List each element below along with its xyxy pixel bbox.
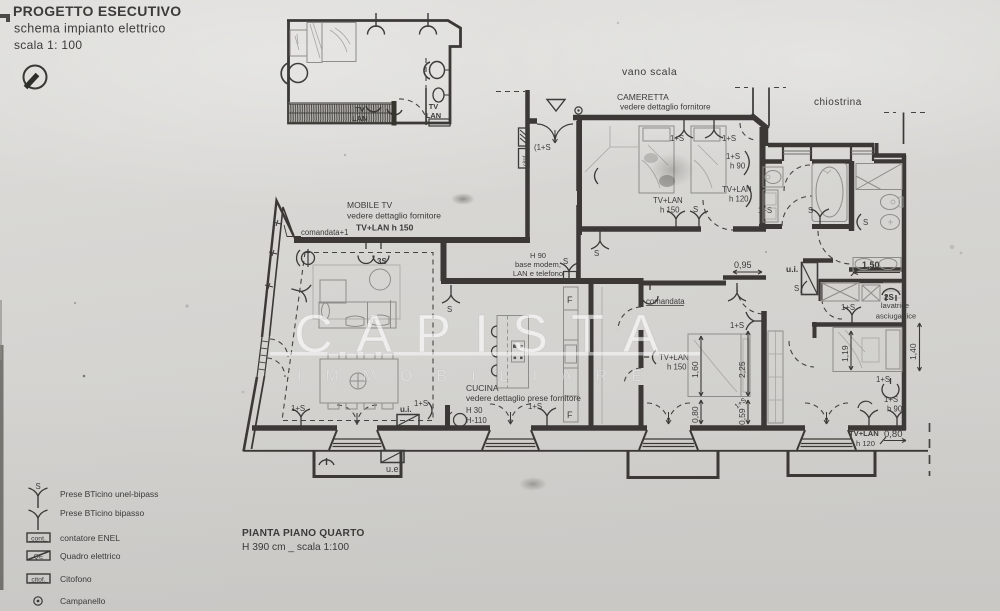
svg-text:LAN: LAN (352, 114, 368, 123)
svg-text:0,59: 0,59 (737, 408, 747, 425)
svg-text:1,60: 1,60 (690, 361, 700, 378)
svg-text:TV+LAN h 150: TV+LAN h 150 (356, 223, 414, 233)
svg-text:1+S: 1+S (528, 402, 542, 411)
svg-text:1+S: 1+S (670, 134, 684, 143)
svg-text:base modem,: base modem, (515, 260, 561, 269)
svg-text:vedere dettaglio fornitore: vedere dettaglio fornitore (347, 211, 441, 221)
svg-text:1+S: 1+S (730, 321, 744, 330)
svg-text:Prese BTicino bipasso: Prese BTicino bipasso (60, 508, 145, 518)
svg-text:chiostrina: chiostrina (814, 97, 862, 108)
svg-text:S: S (794, 284, 799, 293)
svg-text:1+S: 1+S (722, 134, 736, 143)
svg-text:h 150: h 150 (660, 206, 680, 215)
svg-text:h 120: h 120 (856, 439, 875, 448)
svg-text:(1+S: (1+S (534, 143, 551, 152)
svg-text:TV+LAN: TV+LAN (653, 196, 683, 205)
svg-text:PIANTA PIANO QUARTO: PIANTA PIANO QUARTO (242, 528, 364, 539)
svg-text:u.i.: u.i. (786, 264, 798, 274)
svg-text:TV: TV (355, 105, 366, 114)
svg-text:vedere dettaglio fornitore: vedere dettaglio fornitore (620, 103, 711, 112)
svg-text:IMMOBILIARE: IMMOBILIARE (297, 368, 666, 385)
svg-text:TV: TV (429, 102, 439, 111)
svg-text:scala 1: 100: scala 1: 100 (14, 38, 82, 52)
svg-text:S: S (808, 206, 813, 215)
svg-text:Citofono: Citofono (60, 574, 92, 584)
svg-text:vedere dettaglio prese fornito: vedere dettaglio prese fornitore (466, 393, 581, 403)
svg-text:1,40: 1,40 (908, 343, 918, 360)
svg-text:h 120: h 120 (729, 195, 749, 204)
svg-text:H 90: H 90 (530, 251, 546, 260)
svg-text:F: F (567, 410, 573, 420)
svg-text:schema impianto elettrico: schema impianto elettrico (14, 22, 166, 36)
svg-text:1+S: 1+S (876, 375, 890, 384)
svg-text:1+S: 1+S (414, 399, 428, 408)
svg-text:lavatrice: lavatrice (881, 301, 909, 310)
svg-text:vano scala: vano scala (622, 66, 677, 78)
svg-text:TV+LAN: TV+LAN (849, 429, 879, 438)
svg-text:asciugatrice: asciugatrice (876, 312, 917, 321)
svg-text:MOBILE TV: MOBILE TV (347, 200, 393, 210)
svg-text:1,19: 1,19 (840, 345, 850, 362)
svg-text:1,50: 1,50 (862, 260, 880, 270)
svg-text:u.e.: u.e. (386, 464, 401, 474)
svg-text:S: S (863, 218, 868, 227)
svg-text:H 30: H 30 (466, 406, 483, 415)
svg-text:Prese BTicino unel-bipass: Prese BTicino unel-bipass (60, 489, 158, 499)
svg-text:1+S: 1+S (726, 152, 740, 161)
svg-text:H-110: H-110 (466, 416, 487, 425)
svg-text:2,25: 2,25 (737, 361, 747, 378)
svg-text:CAMERETTA: CAMERETTA (617, 92, 669, 102)
svg-text:h 90: h 90 (887, 405, 903, 414)
svg-text:S: S (594, 249, 599, 258)
svg-text:h 90: h 90 (730, 162, 746, 171)
svg-text:u.i.: u.i. (400, 405, 412, 414)
svg-text:contatore ENEL: contatore ENEL (60, 533, 120, 543)
svg-text:citof.: citof. (523, 154, 529, 166)
svg-text:Quadro elettrico: Quadro elettrico (60, 551, 121, 561)
svg-text:comandata+1: comandata+1 (301, 228, 348, 237)
svg-text:Campanello: Campanello (60, 596, 106, 606)
svg-text:0,80: 0,80 (690, 406, 700, 423)
svg-text:LAN e telefono: LAN e telefono (513, 269, 563, 278)
svg-text:0,80: 0,80 (884, 429, 903, 440)
svg-text:0,95: 0,95 (734, 260, 752, 270)
svg-text:1+S: 1+S (884, 395, 898, 404)
svg-text:PROGETTO ESECUTIVO: PROGETTO ESECUTIVO (13, 3, 182, 19)
svg-text:S: S (35, 482, 40, 491)
svg-text:H 390 cm _ scala 1:100: H 390 cm _ scala 1:100 (242, 542, 349, 553)
